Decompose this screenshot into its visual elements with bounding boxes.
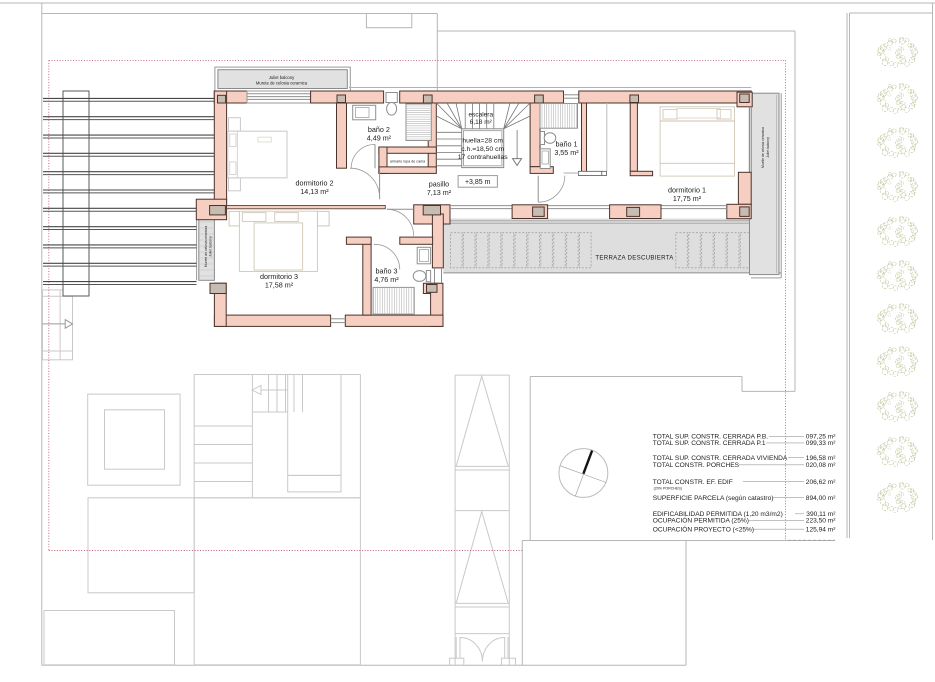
svg-text:020,08 m²: 020,08 m² — [806, 462, 836, 469]
svg-text:escalera: escalera — [469, 112, 494, 119]
svg-text:4,49 m²: 4,49 m² — [367, 134, 392, 143]
svg-text:894,00 m²: 894,00 m² — [806, 495, 836, 502]
svg-text:+3,85 m: +3,85 m — [465, 179, 491, 186]
svg-text:(20% PORCHES): (20% PORCHES) — [654, 486, 682, 490]
svg-text:c.h.=18,50 cm: c.h.=18,50 cm — [461, 146, 504, 153]
svg-text:099,33 m²: 099,33 m² — [806, 440, 836, 447]
svg-text:SUPERFICIE PARCELA (según cata: SUPERFICIE PARCELA (según catastro) — [653, 495, 774, 502]
svg-text:125,94 m²: 125,94 m² — [806, 526, 836, 533]
svg-text:3,55 m²: 3,55 m² — [554, 148, 579, 157]
svg-text:TOTAL CONSTR. EF. EDIF: TOTAL CONSTR. EF. EDIF — [653, 479, 733, 486]
svg-text:196,58 m²: 196,58 m² — [806, 455, 836, 462]
svg-text:Juliet balcony: Juliet balcony — [209, 236, 213, 257]
svg-text:6,18 m²: 6,18 m² — [470, 119, 493, 126]
svg-text:TOTAL SUP. CONSTR. CERRADA P.1: TOTAL SUP. CONSTR. CERRADA P.1 — [653, 440, 766, 447]
svg-text:4,76 m²: 4,76 m² — [374, 275, 399, 284]
svg-text:Juliet balcony: Juliet balcony — [269, 75, 295, 80]
svg-text:huella=28 cm: huella=28 cm — [462, 138, 503, 145]
svg-text:baño 2: baño 2 — [368, 125, 390, 134]
svg-text:armario ropa de cama: armario ropa de cama — [390, 159, 425, 163]
svg-text:17,75 m²: 17,75 m² — [673, 194, 702, 203]
svg-text:Muelle de celosia ceramica: Muelle de celosia ceramica — [761, 127, 765, 168]
svg-text:17 contrahuellas: 17 contrahuellas — [458, 154, 508, 161]
svg-text:Murete de celosia ceramica: Murete de celosia ceramica — [204, 226, 208, 268]
svg-text:Juliet balcony: Juliet balcony — [766, 137, 770, 158]
svg-text:TOTAL SUP. CONSTR. CERRADA VIV: TOTAL SUP. CONSTR. CERRADA VIVIENDA — [653, 455, 788, 462]
svg-text:TOTAL CONSTR. PORCHES: TOTAL CONSTR. PORCHES — [653, 462, 740, 469]
svg-text:OCUPACIÓN PERMITIDA (25%): OCUPACIÓN PERMITIDA (25%) — [653, 516, 749, 525]
svg-text:OCUPACIÓN PROYECTO (<25%): OCUPACIÓN PROYECTO (<25%) — [653, 524, 754, 533]
svg-text:14,13 m²: 14,13 m² — [300, 187, 329, 196]
svg-text:7,13 m²: 7,13 m² — [427, 188, 452, 197]
svg-text:17,58 m²: 17,58 m² — [265, 280, 294, 289]
svg-text:206,62 m²: 206,62 m² — [806, 479, 836, 486]
svg-text:223,50 m²: 223,50 m² — [806, 518, 836, 525]
svg-text:TERRAZA DESCUBIERTA: TERRAZA DESCUBIERTA — [595, 254, 674, 261]
svg-text:Murete de celosia ceramica: Murete de celosia ceramica — [256, 81, 308, 86]
